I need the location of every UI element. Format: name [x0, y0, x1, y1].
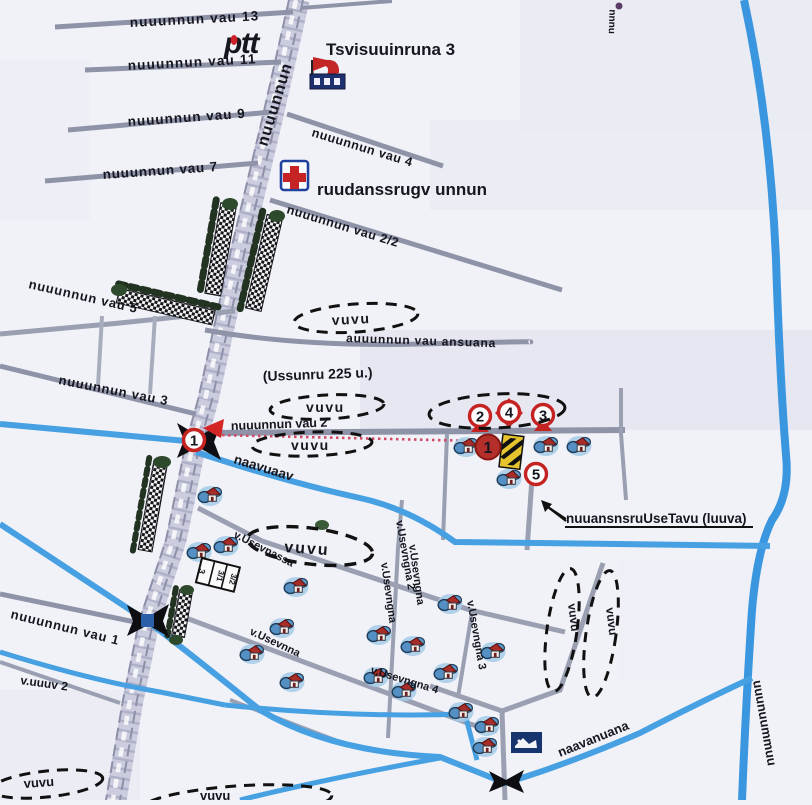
svg-text:nuuansnsruUseTavu (luuva): nuuansnsruUseTavu (luuva) — [566, 511, 747, 526]
svg-text:ruudanssrugv unnun: ruudanssrugv unnun — [317, 180, 487, 199]
svg-text:1: 1 — [484, 440, 493, 457]
svg-text:1: 1 — [190, 433, 198, 450]
svg-text:vuvu: vuvu — [291, 437, 330, 453]
svg-text:nuuu: nuuu — [606, 9, 618, 34]
svg-text:Tsvisuuinruna 3: Tsvisuuinruna 3 — [326, 40, 455, 59]
svg-text:vuvu: vuvu — [200, 788, 230, 800]
svg-text:vuvu: vuvu — [306, 399, 345, 415]
svg-text:vuvu: vuvu — [331, 310, 370, 328]
svg-text:4: 4 — [505, 405, 514, 422]
svg-text:vuvu: vuvu — [23, 774, 54, 791]
svg-text:5: 5 — [532, 467, 540, 484]
svg-text:2: 2 — [476, 409, 484, 426]
